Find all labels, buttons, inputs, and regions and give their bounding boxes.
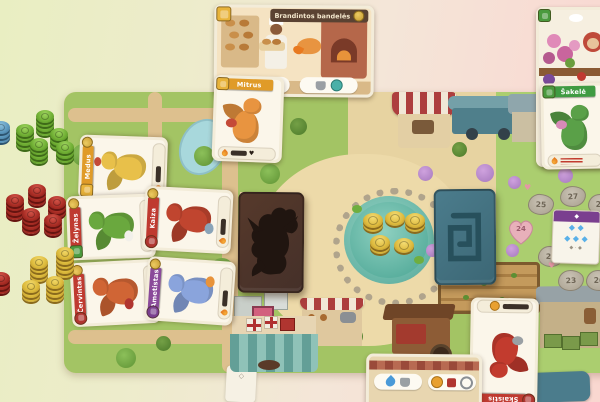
token-chip bbox=[394, 238, 414, 253]
flower-bunch bbox=[569, 40, 580, 51]
goods-pill bbox=[374, 374, 422, 390]
striped-market-stall bbox=[392, 92, 456, 116]
water-drop-icon bbox=[384, 375, 397, 388]
gift-box bbox=[264, 316, 278, 329]
held-item bbox=[205, 276, 215, 288]
dragon-card-kaiza: Kaiza bbox=[142, 186, 233, 255]
bread bbox=[243, 32, 253, 39]
held-item bbox=[512, 336, 523, 345]
stall-front bbox=[398, 114, 450, 148]
plant-token-stack bbox=[56, 123, 74, 163]
bird bbox=[569, 14, 583, 22]
sprout bbox=[463, 295, 469, 300]
dragon-name: Šakelė bbox=[561, 87, 587, 95]
token-chip bbox=[22, 208, 40, 221]
stone-number: 23 bbox=[566, 276, 577, 286]
coin-icon bbox=[490, 301, 500, 311]
heart-icon: ♥ bbox=[249, 151, 255, 157]
goods-pill bbox=[300, 77, 358, 94]
coin-stack bbox=[46, 262, 64, 302]
token-chip bbox=[56, 247, 74, 260]
mushroom bbox=[577, 72, 586, 81]
leaves bbox=[565, 58, 575, 68]
lily-pad bbox=[414, 256, 424, 264]
gem-icon bbox=[330, 79, 342, 91]
red-token-stack bbox=[44, 196, 62, 236]
dragon-card-ametistas: Ametistas bbox=[144, 256, 236, 326]
token-chip bbox=[370, 235, 390, 250]
plant-token-stack bbox=[30, 124, 48, 164]
baker-head bbox=[270, 24, 282, 35]
bakery-stand-awning bbox=[300, 298, 364, 310]
cart-wheel bbox=[498, 128, 510, 140]
dragon-head bbox=[243, 98, 262, 115]
veg-crate bbox=[580, 332, 598, 346]
ability-text-bar bbox=[156, 167, 161, 183]
flame-icon bbox=[221, 148, 229, 156]
pot-icon bbox=[400, 377, 410, 386]
bread-good-chip bbox=[216, 77, 229, 90]
bread-tray bbox=[259, 42, 285, 51]
oven-fire bbox=[337, 50, 351, 60]
coin-stack bbox=[370, 214, 388, 254]
dragon-name: Ametistas bbox=[149, 269, 160, 308]
bread bbox=[262, 39, 271, 45]
dragon-name: Kaiza bbox=[148, 208, 157, 229]
flower-bunch bbox=[543, 52, 555, 64]
dragon-name: Červintas bbox=[75, 276, 85, 313]
gift-box bbox=[246, 318, 262, 332]
lavender-tree bbox=[476, 164, 494, 182]
ability-strip bbox=[549, 155, 600, 167]
dragon-card-mitrus: Mitrus ♥ bbox=[212, 75, 285, 163]
ability-text-bar bbox=[220, 219, 225, 235]
gift-counter bbox=[232, 316, 316, 334]
red-token-stack bbox=[22, 194, 40, 234]
coin-stack bbox=[22, 262, 40, 302]
meat-icon bbox=[447, 378, 456, 387]
tree bbox=[290, 118, 307, 135]
held-item bbox=[124, 298, 134, 309]
bread bbox=[229, 31, 239, 38]
bowl bbox=[258, 360, 280, 370]
flamecraft-table-photo: 25 27 28 24 25 23 26 ♥ ♥ ◆ ◆ ◆ ◆ ◆ ◆ ◆ ·… bbox=[0, 0, 600, 402]
magnifier-icon bbox=[460, 376, 473, 389]
bread bbox=[239, 20, 249, 27]
dragon-name-banner: Medus bbox=[81, 146, 93, 188]
held-item bbox=[204, 223, 214, 234]
ability-text-bar bbox=[222, 291, 228, 307]
dragon-head bbox=[101, 151, 118, 170]
coin-stack bbox=[394, 213, 412, 253]
dragon-card-sakele: Šakelė bbox=[540, 82, 600, 169]
gem-icon: ◆ bbox=[574, 213, 579, 220]
stone-number: 28 bbox=[596, 200, 600, 209]
blue-token-stack bbox=[0, 103, 10, 143]
veg-crate bbox=[562, 336, 580, 350]
veg-crate bbox=[544, 334, 562, 348]
bread bbox=[272, 39, 281, 45]
tree bbox=[260, 164, 280, 184]
spiral-icon bbox=[436, 191, 495, 284]
ability-text-bar bbox=[503, 304, 529, 309]
dragon-head bbox=[571, 105, 589, 121]
stone-number: 27 bbox=[567, 192, 578, 202]
dragon-deck bbox=[238, 192, 305, 294]
plant-good-chip bbox=[538, 9, 551, 22]
dragon-head bbox=[490, 362, 508, 378]
tree bbox=[156, 336, 171, 351]
wooden-cart bbox=[392, 318, 450, 354]
fancy-dragon-deck bbox=[434, 189, 497, 286]
dragon-body bbox=[232, 110, 259, 143]
lavender-tree bbox=[418, 166, 433, 181]
stone-number: 25 bbox=[536, 200, 547, 210]
gift-box-red bbox=[280, 318, 295, 331]
dragon-name-banner: Červintas bbox=[73, 274, 86, 317]
gem-row: ◆ · ◆ bbox=[552, 243, 598, 253]
stone-number: 26 bbox=[594, 276, 600, 285]
held-item bbox=[124, 230, 133, 241]
dragon-name-banner: Skaistis bbox=[480, 394, 526, 402]
dragon-name-banner: Šakelė bbox=[551, 86, 595, 98]
dragon-name-banner: Kaiza bbox=[146, 197, 159, 240]
dragon-head bbox=[88, 211, 105, 230]
shop-card-bottom bbox=[366, 353, 483, 402]
cart-wheel bbox=[466, 128, 478, 140]
goods-pill bbox=[428, 374, 476, 390]
tree bbox=[452, 142, 467, 157]
token-chip bbox=[30, 138, 48, 151]
lily-pad bbox=[352, 205, 362, 213]
pretzel bbox=[320, 314, 327, 321]
dragon-name-banner: Mitrus bbox=[225, 78, 273, 91]
dragon-name: Skaistis bbox=[488, 395, 518, 402]
dragon-name: Mitrus bbox=[237, 80, 262, 89]
stall-body bbox=[540, 302, 600, 348]
sprout bbox=[511, 273, 517, 278]
fancy-reference-card: ◆ ◆ ◆ ◆ ◆ ◆ ◆ · ◆ bbox=[551, 209, 600, 265]
ability-strip bbox=[218, 268, 232, 319]
bread bbox=[239, 44, 249, 51]
vendor-face bbox=[587, 38, 599, 49]
lavender-tree bbox=[558, 168, 573, 183]
awning-strip bbox=[369, 361, 479, 371]
bread bbox=[225, 43, 235, 50]
ability-text-lines bbox=[560, 157, 582, 163]
dragon-head bbox=[92, 277, 109, 296]
ability-text-bar bbox=[230, 151, 246, 156]
bread-shelf bbox=[221, 15, 259, 67]
flame-icon bbox=[550, 157, 558, 165]
held-item bbox=[94, 157, 101, 166]
flame-icon bbox=[220, 308, 228, 316]
pot-icon bbox=[315, 81, 325, 90]
dragon-name: Medus bbox=[83, 154, 92, 179]
bread-good-chip bbox=[216, 6, 231, 21]
dragon-silhouette-icon bbox=[240, 194, 303, 292]
heart-good-chip bbox=[522, 393, 535, 402]
cart-panel bbox=[396, 324, 426, 344]
heart-stone: 24 bbox=[506, 218, 536, 246]
token-chip bbox=[56, 141, 74, 154]
lavender-tree bbox=[508, 176, 521, 189]
ability-strip: ♥ bbox=[219, 147, 275, 160]
pot bbox=[340, 312, 356, 323]
ability-strip bbox=[217, 197, 231, 248]
dragon-head bbox=[166, 203, 183, 222]
mini-heart-icon: ♥ bbox=[524, 184, 531, 192]
stone-number: 24 bbox=[506, 225, 536, 233]
flame-icon bbox=[218, 237, 226, 245]
path bbox=[68, 330, 228, 344]
token-chip bbox=[46, 276, 64, 289]
coin-icon bbox=[431, 376, 443, 388]
barrel bbox=[584, 308, 596, 324]
token-chip bbox=[22, 280, 40, 293]
coin-icon bbox=[353, 11, 364, 22]
brick-oven bbox=[321, 16, 368, 78]
token-chip bbox=[44, 214, 62, 227]
stall-window bbox=[412, 120, 434, 134]
tree bbox=[116, 348, 136, 368]
plant-good-chip bbox=[542, 85, 555, 98]
shop-title-banner: Brandintos bandelės bbox=[270, 9, 368, 23]
ability-strip bbox=[478, 301, 532, 313]
red-token-stack bbox=[0, 254, 10, 294]
shop-title: Brandintos bandelės bbox=[274, 11, 350, 20]
flower-bunch bbox=[547, 34, 561, 48]
